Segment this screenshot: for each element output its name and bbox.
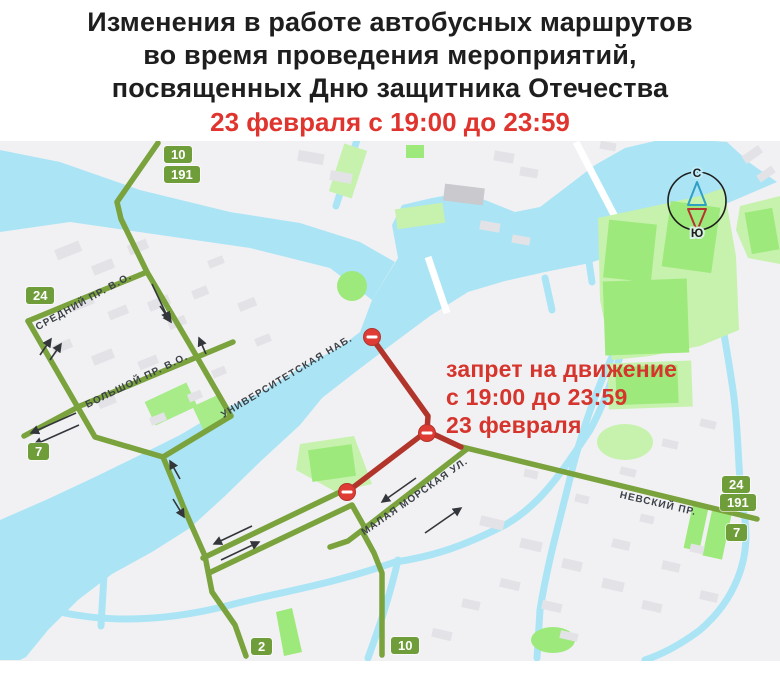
no-entry-icon — [419, 425, 436, 442]
no-entry-icon — [364, 329, 381, 346]
poster-title-line-3: посвященных Дню защитника Отечества — [0, 72, 780, 105]
compass-north-label: С — [693, 166, 702, 180]
closure-annotation-line-3: 23 февраля — [446, 411, 677, 439]
closure-annotation-line-2: с 19:00 до 23:59 — [446, 383, 677, 411]
route-badge-7-right: 7 — [726, 524, 747, 541]
poster-title-line-1: Изменения в работе автобусных маршрутов — [0, 6, 780, 39]
closure-annotation-line-1: запрет на движение — [446, 355, 677, 383]
route-badge-10-bottom: 10 — [391, 637, 419, 654]
poster-subtitle-dates: 23 февраля с 19:00 до 23:59 — [0, 106, 780, 138]
poster-header: Изменения в работе автобусных маршрутов … — [0, 6, 780, 138]
route-badge-191-top: 191 — [164, 166, 200, 183]
closure-annotation: запрет на движение с 19:00 до 23:59 23 ф… — [446, 355, 677, 439]
route-badge-24-right: 24 — [722, 476, 750, 493]
compass-south-label: Ю — [691, 226, 703, 240]
route-badge-10-top: 10 — [164, 146, 192, 163]
route-badge-24-left: 24 — [26, 287, 54, 304]
route-badge-191-right: 191 — [720, 494, 756, 511]
poster-title-line-2: во время проведения мероприятий, — [0, 39, 780, 72]
route-badge-7-left: 7 — [28, 443, 49, 460]
route-badge-2-bottom: 2 — [251, 638, 272, 655]
no-entry-icon — [339, 484, 356, 501]
